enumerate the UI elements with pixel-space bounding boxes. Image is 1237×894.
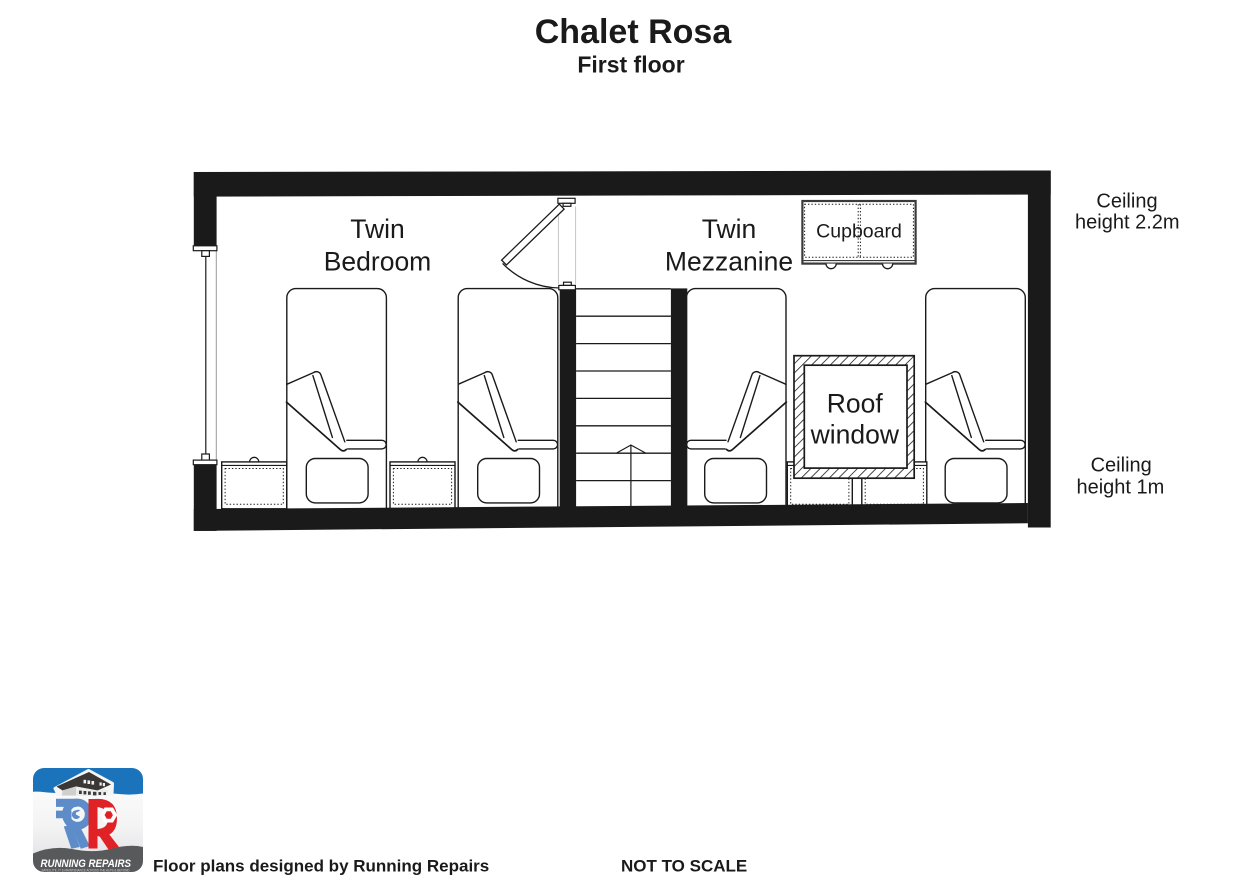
svg-text:height 1m: height 1m: [1076, 476, 1164, 498]
svg-text:Bedroom: Bedroom: [324, 246, 432, 276]
svg-text:Ceiling: Ceiling: [1091, 455, 1152, 477]
svg-text:Twin: Twin: [702, 214, 757, 244]
svg-text:Roof: Roof: [827, 388, 884, 418]
svg-text:height 2.2m: height 2.2m: [1075, 212, 1180, 234]
svg-text:Twin: Twin: [350, 214, 405, 244]
svg-text:Floor plans designed by Runnin: Floor plans designed by Running Repairs: [153, 857, 489, 876]
svg-text:Mezzanine: Mezzanine: [665, 246, 793, 276]
svg-text:Cupboard: Cupboard: [816, 220, 902, 242]
svg-text:First floor: First floor: [577, 52, 684, 78]
svg-text:Ceiling: Ceiling: [1096, 190, 1157, 212]
svg-text:window: window: [810, 419, 900, 449]
svg-text:SATELLITE, IT & MAINTENANCE AC: SATELLITE, IT & MAINTENANCE ACROSS THE A…: [42, 869, 130, 873]
svg-text:NOT TO SCALE: NOT TO SCALE: [621, 857, 747, 876]
svg-text:Chalet Rosa: Chalet Rosa: [535, 13, 733, 51]
